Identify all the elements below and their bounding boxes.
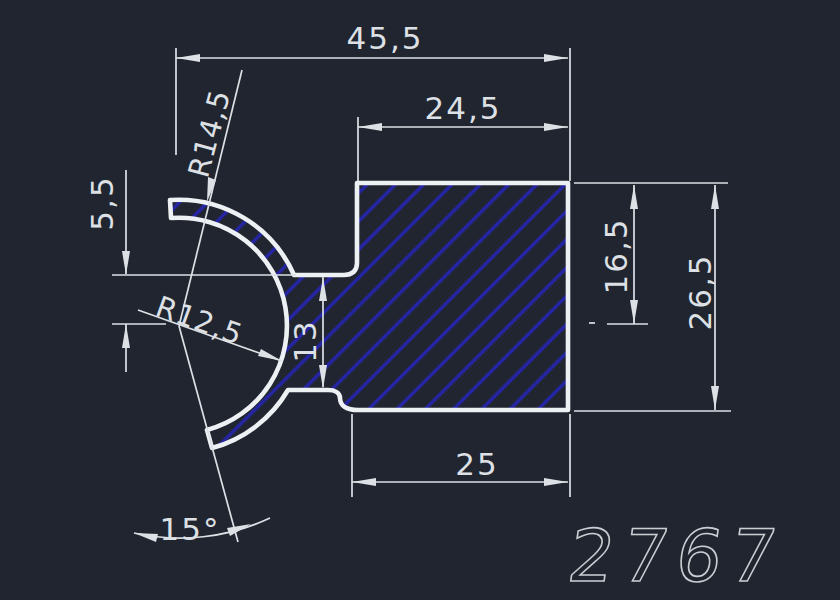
dim-angle-label: 15° (160, 511, 221, 547)
cad-drawing-canvas: 45,5 24,5 25 16,5 26,5 13 5,5 R14,5 R12,… (0, 0, 840, 600)
dim-block-width-label: 24,5 (424, 90, 501, 126)
dim-right-height-label: 26,5 (682, 253, 718, 330)
dim-neck-label: 13 (287, 319, 323, 362)
dim-total-width-label: 45,5 (346, 20, 423, 56)
drawing-number: 2767 (563, 514, 790, 598)
dim-top-to-center-label: 16,5 (598, 217, 634, 294)
dim-bottom-width-label: 25 (455, 446, 498, 482)
dim-lip-label: 5,5 (84, 175, 120, 230)
